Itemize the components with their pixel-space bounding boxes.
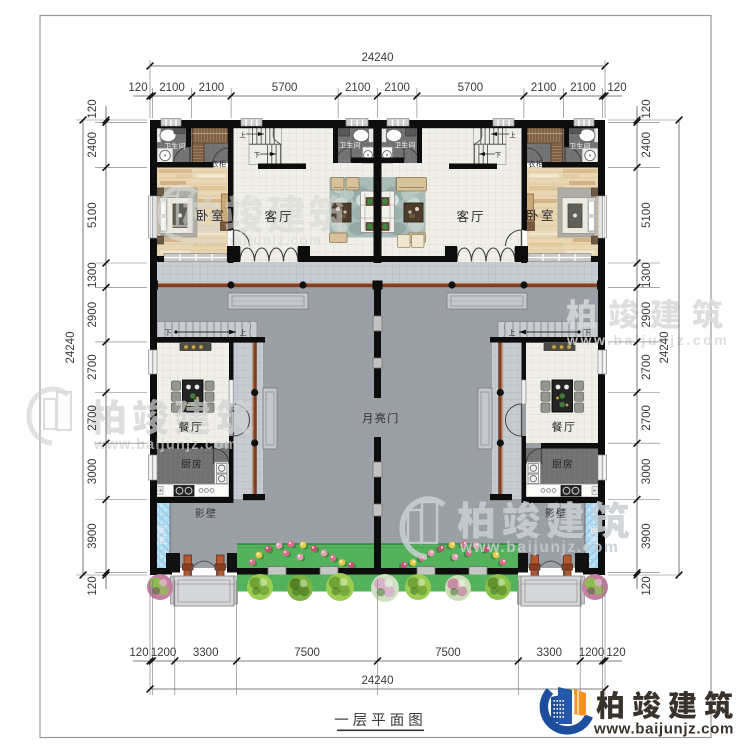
svg-text:24240: 24240 bbox=[65, 332, 77, 364]
svg-text:衣柜: 衣柜 bbox=[528, 160, 543, 170]
svg-text:2700: 2700 bbox=[641, 354, 653, 380]
svg-text:月亮门: 月亮门 bbox=[362, 410, 400, 426]
svg-text:下: 下 bbox=[254, 149, 261, 159]
svg-text:www.baijunjz.com: www.baijunjz.com bbox=[183, 232, 322, 248]
svg-text:柏竣建筑: 柏竣建筑 bbox=[596, 683, 740, 725]
svg-text:厨房: 厨房 bbox=[552, 457, 573, 471]
svg-text:120: 120 bbox=[606, 647, 625, 659]
svg-text:上: 上 bbox=[240, 328, 247, 338]
svg-text:影壁: 影壁 bbox=[545, 505, 567, 520]
svg-text:3300: 3300 bbox=[537, 647, 563, 659]
svg-text:120: 120 bbox=[641, 576, 653, 595]
svg-text:2100: 2100 bbox=[531, 82, 557, 94]
svg-text:5100: 5100 bbox=[641, 202, 653, 228]
svg-text:上: 上 bbox=[509, 328, 516, 338]
svg-text:卫生间: 卫生间 bbox=[164, 141, 186, 151]
svg-text:卫生间: 卫生间 bbox=[569, 141, 591, 151]
svg-text:2700: 2700 bbox=[87, 405, 99, 431]
svg-text:1200: 1200 bbox=[151, 647, 177, 659]
svg-text:客厅: 客厅 bbox=[264, 206, 293, 225]
svg-text:2100: 2100 bbox=[570, 82, 596, 94]
svg-text:2100: 2100 bbox=[199, 82, 225, 94]
svg-text:120: 120 bbox=[607, 82, 626, 94]
svg-text:池: 池 bbox=[590, 534, 599, 546]
svg-text:5100: 5100 bbox=[87, 202, 99, 228]
svg-text:3000: 3000 bbox=[87, 459, 99, 485]
svg-text:7500: 7500 bbox=[435, 647, 461, 659]
svg-text:3900: 3900 bbox=[87, 523, 99, 549]
svg-text:www.baijunjz.com: www.baijunjz.com bbox=[93, 437, 238, 453]
svg-text:一层平面图: 一层平面图 bbox=[334, 709, 427, 730]
svg-text:上: 上 bbox=[509, 129, 516, 139]
svg-text:www.baijunjz.com: www.baijunjz.com bbox=[593, 722, 734, 738]
svg-text:120: 120 bbox=[87, 576, 99, 595]
svg-text:下: 下 bbox=[165, 328, 172, 338]
svg-text:卫生间: 卫生间 bbox=[394, 140, 416, 150]
svg-text:餐厅: 餐厅 bbox=[179, 419, 204, 435]
svg-text:1300: 1300 bbox=[641, 262, 653, 288]
svg-text:卫生间: 卫生间 bbox=[339, 140, 361, 150]
svg-text:24240: 24240 bbox=[362, 675, 394, 687]
svg-text:餐厅: 餐厅 bbox=[552, 419, 577, 435]
svg-text:2900: 2900 bbox=[87, 302, 99, 328]
svg-text:客厅: 客厅 bbox=[456, 206, 485, 225]
svg-text:3300: 3300 bbox=[193, 647, 219, 659]
svg-text:柏竣建筑: 柏竣建筑 bbox=[90, 388, 258, 442]
svg-text:池: 池 bbox=[157, 534, 166, 546]
svg-text:5700: 5700 bbox=[272, 82, 298, 94]
svg-text:2900: 2900 bbox=[641, 302, 653, 328]
svg-text:5700: 5700 bbox=[458, 82, 484, 94]
svg-text:1300: 1300 bbox=[87, 262, 99, 288]
svg-text:2700: 2700 bbox=[641, 405, 653, 431]
svg-text:3000: 3000 bbox=[641, 459, 653, 485]
svg-text:1200: 1200 bbox=[579, 647, 605, 659]
svg-text:衣柜: 衣柜 bbox=[211, 160, 226, 170]
svg-text:120: 120 bbox=[128, 82, 147, 94]
svg-text:卧室: 卧室 bbox=[196, 205, 226, 224]
svg-text:24240: 24240 bbox=[362, 52, 394, 64]
svg-text:卧室: 卧室 bbox=[526, 205, 556, 224]
svg-text:影壁: 影壁 bbox=[195, 505, 217, 520]
svg-text:厨房: 厨房 bbox=[181, 457, 202, 471]
svg-text:www.baijunjz.com: www.baijunjz.com bbox=[566, 332, 729, 348]
svg-text:7500: 7500 bbox=[294, 647, 320, 659]
svg-text:下: 下 bbox=[584, 328, 591, 338]
svg-text:2400: 2400 bbox=[87, 132, 99, 158]
svg-text:24240: 24240 bbox=[659, 332, 671, 364]
svg-text:120: 120 bbox=[641, 99, 653, 118]
svg-text:下: 下 bbox=[495, 149, 502, 159]
svg-text:120: 120 bbox=[129, 647, 148, 659]
svg-text:2100: 2100 bbox=[159, 82, 185, 94]
svg-text:2100: 2100 bbox=[345, 82, 371, 94]
svg-text:2700: 2700 bbox=[87, 354, 99, 380]
svg-text:2400: 2400 bbox=[641, 132, 653, 158]
svg-text:2100: 2100 bbox=[384, 82, 410, 94]
svg-text:120: 120 bbox=[87, 99, 99, 118]
svg-text:上: 上 bbox=[239, 129, 246, 139]
svg-text:3900: 3900 bbox=[641, 523, 653, 549]
